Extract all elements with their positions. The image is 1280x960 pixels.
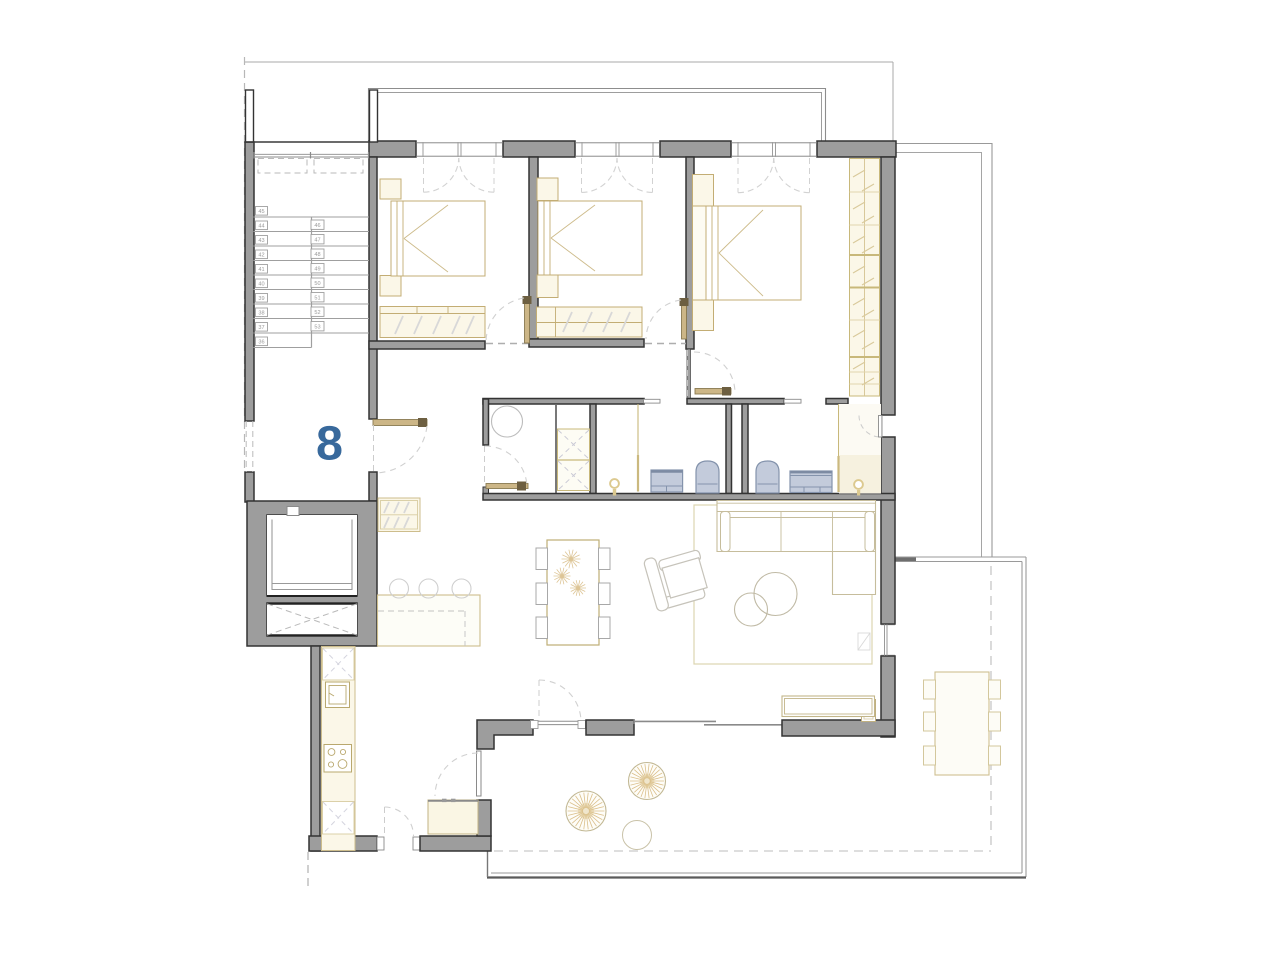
svg-text:41: 41 (258, 267, 264, 273)
svg-text:44: 44 (258, 224, 264, 230)
svg-text:38: 38 (258, 311, 264, 317)
svg-text:8: 8 (316, 417, 343, 471)
svg-text:52: 52 (314, 310, 320, 316)
svg-text:53: 53 (314, 325, 320, 331)
svg-text:36: 36 (258, 340, 264, 346)
svg-text:48: 48 (314, 252, 320, 258)
svg-text:47: 47 (314, 238, 320, 244)
svg-text:50: 50 (314, 281, 320, 287)
svg-text:42: 42 (258, 253, 264, 259)
svg-text:51: 51 (314, 296, 320, 302)
svg-text:39: 39 (258, 296, 264, 302)
svg-text:43: 43 (258, 238, 264, 244)
svg-text:45: 45 (258, 209, 264, 215)
svg-text:37: 37 (258, 325, 264, 331)
svg-text:49: 49 (314, 267, 320, 273)
svg-text:46: 46 (314, 223, 320, 229)
svg-text:40: 40 (258, 282, 264, 288)
